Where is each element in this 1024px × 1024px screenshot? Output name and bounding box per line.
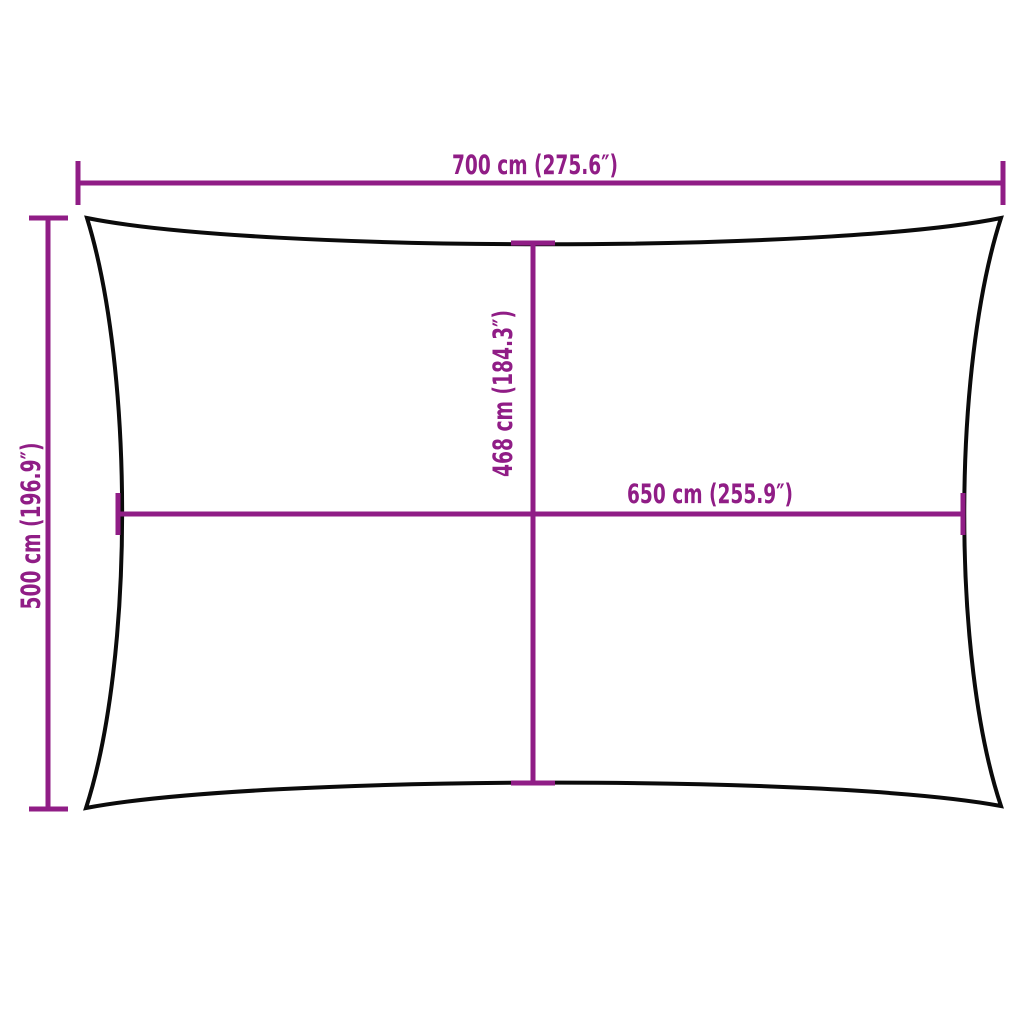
label-left-height: 500 cm (196.9″): [16, 443, 47, 610]
label-center-width: 650 cm (255.9″): [627, 479, 793, 510]
label-top-width: 700 cm (275.6″): [452, 150, 618, 181]
dimension-diagram: 700 cm (275.6″) 500 cm (196.9″) 468 cm (…: [0, 0, 1024, 1024]
diagram-canvas: 700 cm (275.6″) 500 cm (196.9″) 468 cm (…: [0, 0, 1024, 1024]
label-center-height: 468 cm (184.3″): [488, 310, 519, 477]
